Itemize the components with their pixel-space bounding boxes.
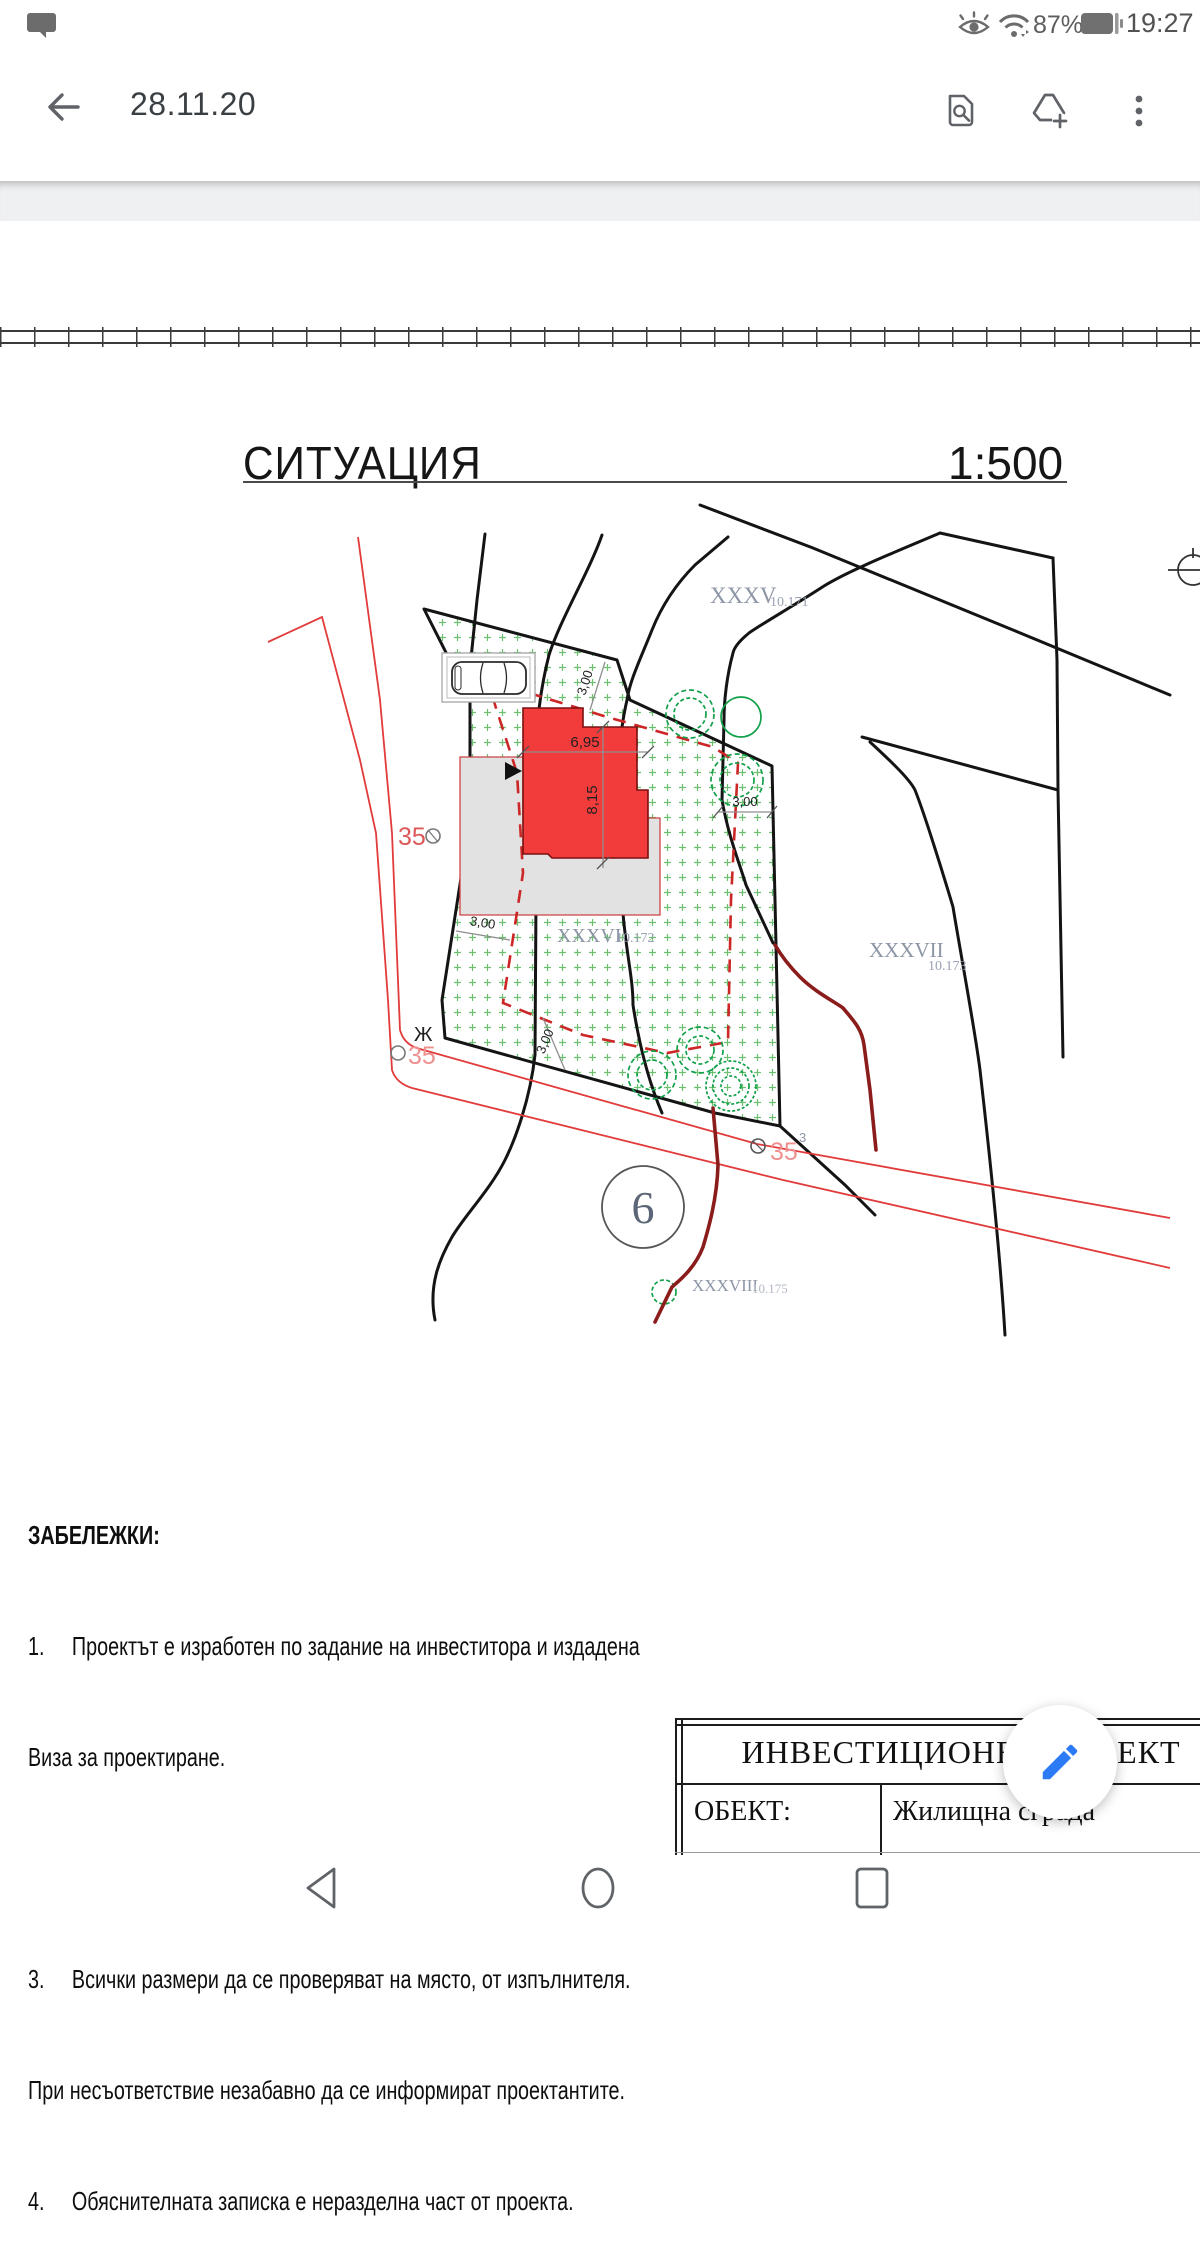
edit-fab-button[interactable] [1003, 1705, 1117, 1819]
benchmark-icon [1168, 548, 1200, 585]
wifi-icon [997, 10, 1031, 40]
table-border [675, 1783, 1200, 1785]
battery-icon [1081, 13, 1123, 35]
plot-number-circle: 6 [602, 1166, 684, 1248]
pencil-icon [1037, 1739, 1083, 1785]
svg-text:10.175: 10.175 [752, 1281, 788, 1296]
notes-line: 1. Проектът е изработен по задание на ин… [28, 1628, 640, 1665]
app-bar: 28.11.20 [0, 48, 1200, 181]
table-border [675, 1718, 1200, 1720]
svg-text:10.171: 10.171 [770, 595, 809, 610]
table-border [675, 1724, 1200, 1726]
notification-message-icon [27, 9, 59, 41]
svg-text:3,00: 3,00 [732, 794, 757, 809]
eye-comfort-icon [956, 10, 992, 40]
table-border [880, 1783, 882, 1856]
svg-text:8,15: 8,15 [584, 785, 601, 814]
battery-percent-text: 87% [1033, 11, 1083, 40]
add-to-drive-icon[interactable] [1031, 92, 1071, 130]
notes-block: ЗАБЕЛЕЖКИ: 1. Проектът е изработен по за… [28, 1443, 640, 2257]
parcel-label-xxxviii: XXXVIII [692, 1276, 758, 1295]
notes-line: Виза за проектиране. [28, 1739, 640, 1776]
table-border [675, 1718, 677, 1856]
title-block-header: ИНВЕСТИЦИОНЕН ПРОЕКТ [681, 1734, 1200, 1771]
car-icon [442, 653, 535, 702]
back-arrow-icon[interactable] [44, 88, 82, 126]
svg-text:6,95: 6,95 [570, 734, 599, 751]
sheet-ruler-line-bottom [0, 342, 1200, 344]
new-building [523, 708, 648, 858]
object-label: ОБЕКТ: [694, 1796, 791, 1828]
notes-header: ЗАБЕЛЕЖКИ: [28, 1517, 640, 1554]
find-in-page-icon[interactable] [943, 92, 979, 128]
clock-text: 19:27 [1126, 8, 1194, 39]
site-plan-drawing: 6,95 8,15 3,00 3,00 3,00 3,00 XXXV 10.17… [0, 495, 1200, 1340]
notes-line: 4. Обяснителната записка е неразделна ча… [28, 2183, 640, 2220]
nav-home-icon[interactable] [578, 1865, 618, 1911]
document-title: 28.11.20 [130, 86, 256, 123]
navigation-bar [0, 1855, 1200, 1920]
svg-text:3: 3 [799, 1130, 806, 1145]
table-border [675, 1852, 1200, 1853]
notes-line: 3. Всички размери да се проверяват на мя… [28, 1961, 640, 1998]
svg-text:35: 35 [408, 1042, 436, 1070]
sheet-ruler-line-top [0, 330, 1200, 332]
title-underline [243, 481, 1067, 483]
svg-text:35: 35 [770, 1138, 798, 1166]
nav-recents-icon[interactable] [852, 1865, 892, 1911]
parcel-label-xxxvi: XXXVI [557, 925, 621, 947]
svg-text:6: 6 [632, 1182, 655, 1233]
zh-label: Ж [414, 1024, 433, 1046]
overflow-menu-icon[interactable] [1126, 92, 1152, 130]
notes-line: При несъответствие незабавно да се инфор… [28, 2072, 640, 2109]
status-bar: 87% 19:27 [0, 0, 1200, 48]
svg-text:10.172: 10.172 [616, 931, 655, 946]
svg-text:35: 35 [398, 823, 426, 851]
viewer-background-strip [0, 181, 1200, 221]
parcel-label-xxxv: XXXV [710, 583, 777, 608]
svg-text:10.173: 10.173 [928, 959, 967, 974]
nav-back-icon[interactable] [300, 1865, 344, 1911]
